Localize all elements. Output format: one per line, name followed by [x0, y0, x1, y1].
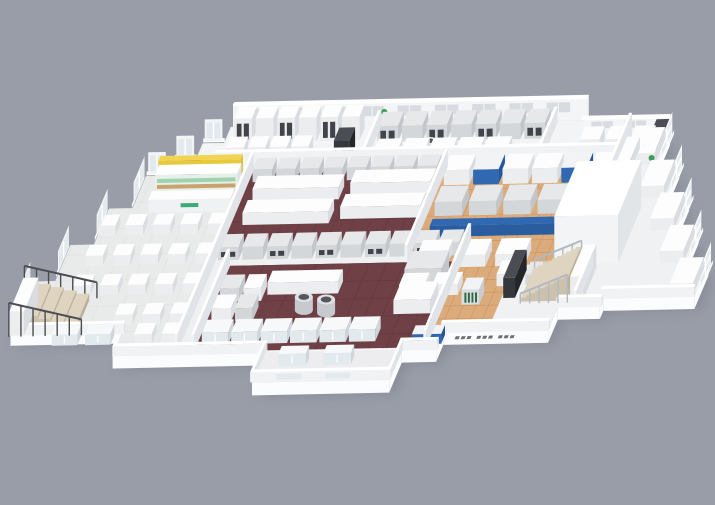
equipment-unit-detail — [376, 249, 382, 254]
equipment-unit-detail — [527, 128, 533, 136]
porch-window — [277, 373, 302, 380]
isometric-floorplan-render — [0, 0, 715, 505]
equipment-box-top — [52, 325, 81, 335]
equipment-unit-detail — [319, 250, 325, 255]
equipment-unit-detail — [270, 251, 276, 256]
dark-cabinet-front — [503, 278, 515, 298]
interior-wall-front — [601, 287, 694, 299]
staircase-right-step-front — [531, 293, 536, 302]
equipment-box-slat — [468, 293, 470, 303]
dining-table-front — [142, 314, 160, 324]
dining-table-front — [85, 256, 103, 266]
equipment-unit-detail — [438, 130, 444, 138]
equipment-box-front — [473, 169, 499, 185]
dining-table-front — [180, 224, 198, 234]
equipment-unit-detail — [536, 128, 542, 136]
dining-table-front — [155, 284, 173, 294]
equipment-unit-front — [316, 245, 337, 259]
equipment-unit-detail — [327, 250, 333, 255]
equipment-box-top — [242, 198, 334, 213]
equipment-unit-front — [267, 246, 288, 260]
equipment-box-top — [340, 192, 426, 207]
equipment-box-front — [242, 211, 328, 225]
dining-table-front — [168, 254, 186, 264]
equipment-box-front — [340, 205, 420, 219]
equipment-box-slat — [475, 292, 477, 302]
kettle-base — [295, 305, 313, 315]
equipment-unit-front — [524, 123, 545, 139]
equipment-unit-front — [291, 245, 312, 259]
equipment-unit-detail — [323, 122, 328, 138]
interior-wall-front — [405, 245, 408, 262]
kiosk-shelf-top — [155, 163, 242, 175]
equipment-unit-detail — [380, 131, 386, 139]
floorplan-stage — [0, 0, 715, 505]
kettle-opening — [321, 297, 332, 303]
equipment-box-top — [267, 269, 343, 282]
dining-table-front — [125, 225, 143, 235]
slab-side — [402, 349, 436, 363]
equipment-unit-detail — [389, 131, 395, 139]
equipment-unit-detail — [478, 129, 484, 137]
staircase-right-step-front — [549, 284, 554, 301]
equipment-box-top — [85, 325, 114, 335]
equipment-box-front — [393, 299, 430, 314]
equipment-unit-detail — [278, 251, 284, 256]
dining-table-front — [153, 224, 171, 234]
interior-wall-front — [400, 340, 438, 351]
dining-table-front — [134, 334, 152, 344]
equipment-unit-front — [435, 202, 462, 217]
equipment-box-top — [253, 174, 345, 189]
equipment-unit-detail — [429, 130, 435, 138]
equipment-unit-front — [365, 244, 386, 258]
equipment-unit-front — [532, 168, 558, 184]
staircase-right-step-front — [521, 298, 526, 302]
equipment-unit-detail — [330, 122, 335, 138]
kettle-opening — [298, 294, 309, 300]
kettle-base — [317, 308, 335, 318]
equipment-unit-front — [340, 244, 361, 258]
equipment-unit-front — [503, 200, 530, 215]
equipment-box-slat — [472, 293, 474, 303]
interior-wall-front — [556, 297, 601, 308]
equipment-box-top — [278, 345, 309, 354]
porch-window — [326, 372, 351, 379]
equipment-box-slat — [464, 293, 466, 303]
equipment-unit-front — [469, 201, 496, 216]
slab-side — [558, 306, 600, 320]
equipment-unit-front — [444, 170, 470, 186]
dining-table-front — [113, 255, 131, 265]
dining-table-front — [140, 254, 158, 264]
equipment-unit-front — [503, 168, 529, 184]
dining-table-front — [128, 284, 146, 294]
equipment-unit-front — [242, 246, 263, 260]
staircase-right-step-front — [540, 288, 545, 301]
dining-table-front — [100, 285, 118, 295]
equipment-box-front — [9, 312, 24, 336]
equipment-unit-detail — [487, 129, 493, 137]
kiosk-counter-top — [148, 189, 234, 200]
equipment-unit-detail — [368, 249, 374, 254]
kiosk-logo — [181, 203, 199, 207]
equipment-box-top — [323, 345, 354, 354]
equipment-box-top — [350, 168, 436, 183]
